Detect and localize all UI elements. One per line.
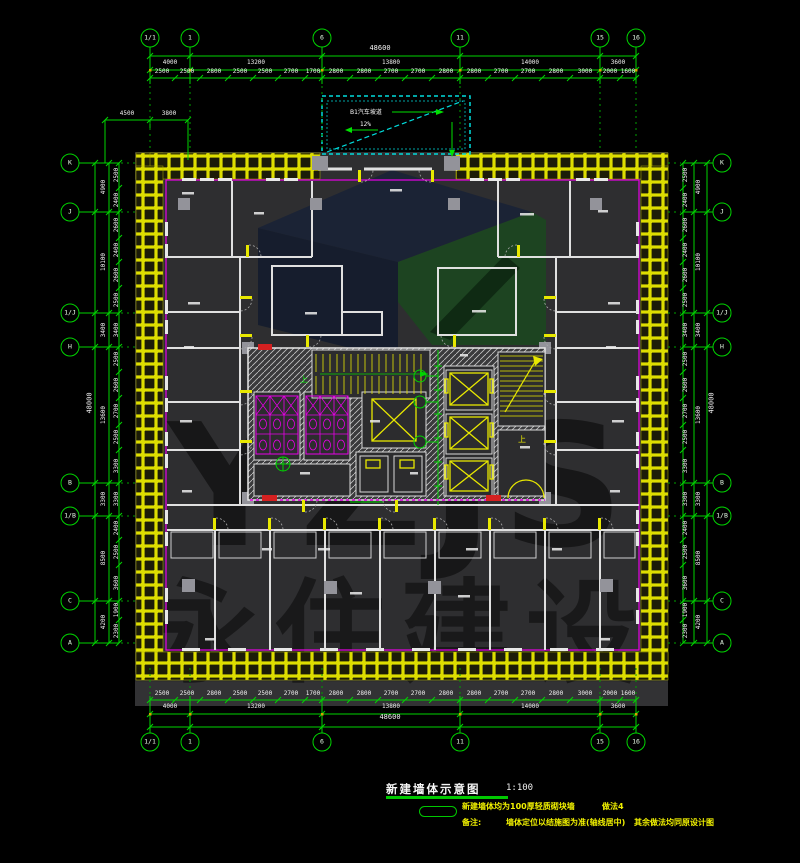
- ramp-slope-label: 12%: [360, 121, 371, 128]
- ramp-label: B1汽车坡道: [350, 108, 382, 116]
- ramp: B1汽车坡道 12%: [322, 96, 470, 157]
- stair-up-label-1: 上: [300, 375, 308, 384]
- stair-up-label-2: 上: [518, 435, 526, 444]
- cad-drawing-canvas: YZJS 永住建设: [0, 0, 800, 863]
- floor-plan-linework: YZJS 永住建设: [0, 0, 800, 863]
- service-core: 上 上: [248, 344, 545, 505]
